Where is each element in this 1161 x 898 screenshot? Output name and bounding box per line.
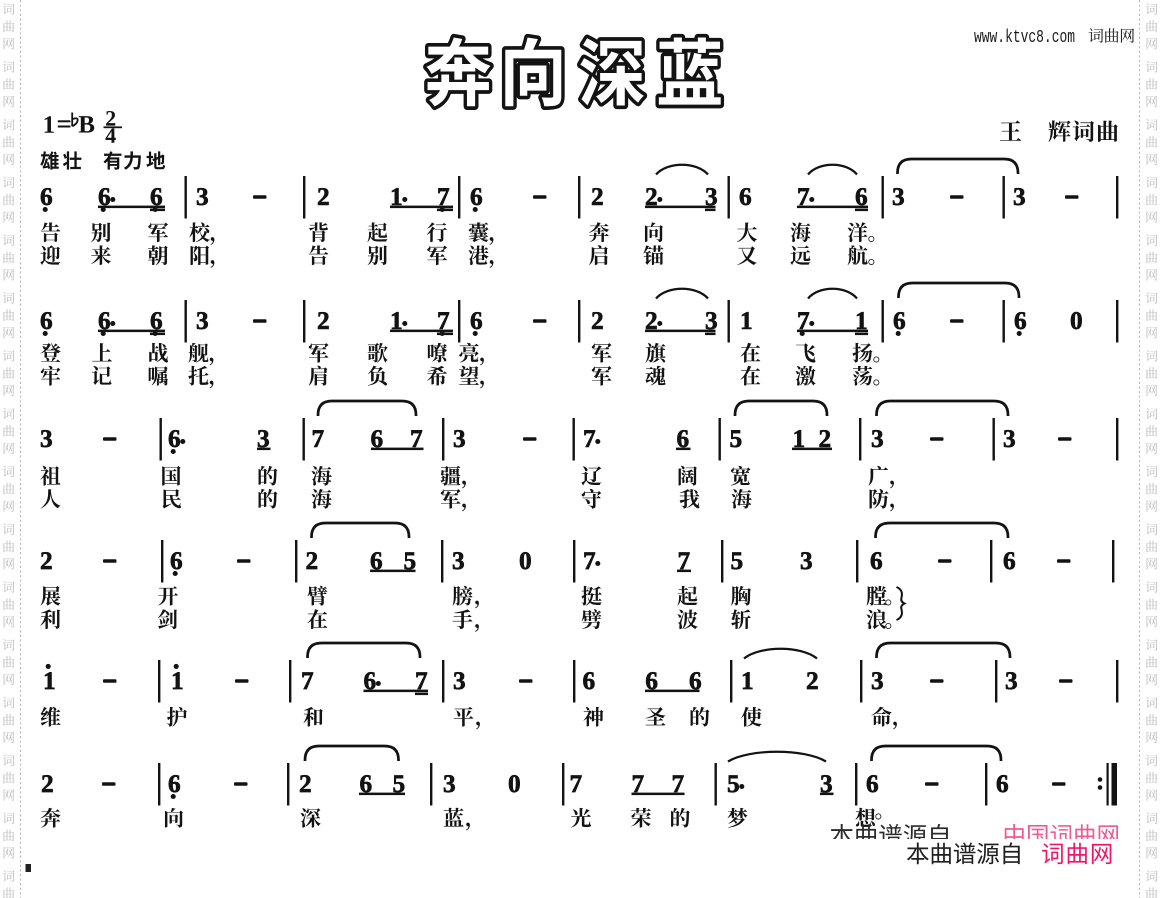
svg-text:www.ktvc8.com: www.ktvc8.com — [974, 27, 1075, 48]
